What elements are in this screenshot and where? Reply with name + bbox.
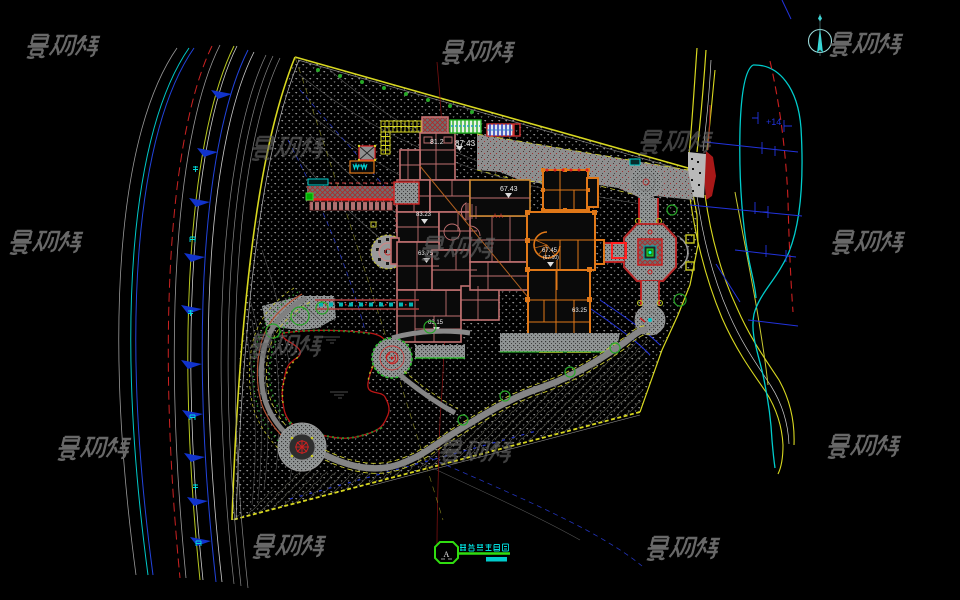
svg-text:A: A (444, 550, 450, 559)
svg-text:(67.10): (67.10) (543, 255, 559, 261)
svg-text:67.45: 67.45 (542, 248, 558, 254)
svg-text:83.23: 83.23 (416, 212, 432, 218)
svg-text:A-A: A-A (493, 214, 503, 220)
svg-text:+14: +14 (766, 117, 781, 127)
svg-text:67.43: 67.43 (500, 186, 518, 193)
svg-text:81.2: 81.2 (430, 139, 444, 146)
svg-text:63.25: 63.25 (572, 308, 588, 314)
